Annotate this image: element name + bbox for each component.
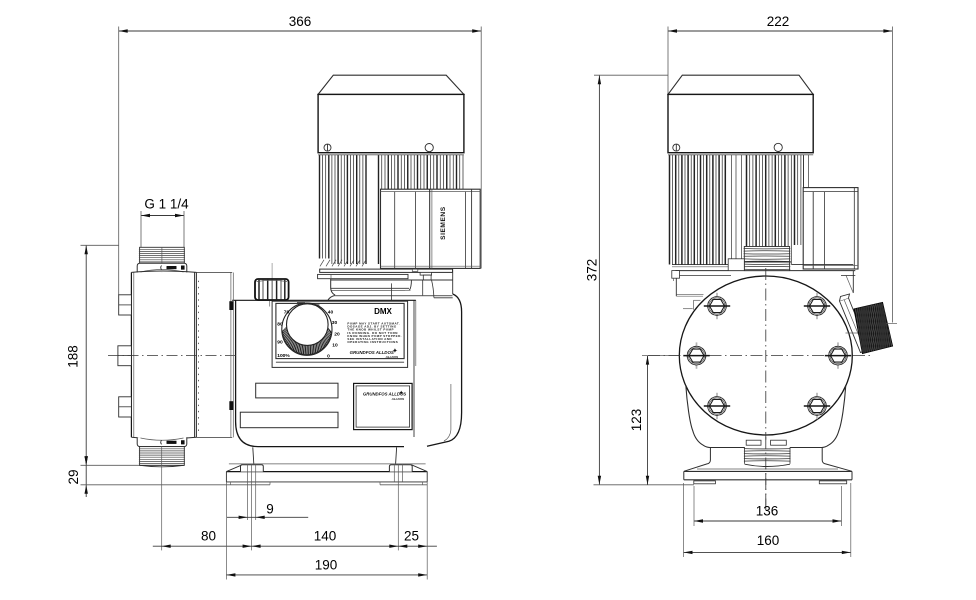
svg-text:90: 90: [277, 340, 283, 346]
svg-text:40: 40: [328, 310, 334, 316]
svg-text:30: 30: [332, 320, 338, 326]
svg-text:123: 123: [629, 409, 644, 432]
svg-text:80: 80: [277, 322, 283, 328]
svg-text:DMX: DMX: [374, 307, 392, 316]
svg-text:G 1 1/4: G 1 1/4: [144, 197, 189, 212]
svg-text:80: 80: [201, 529, 216, 544]
svg-text:70: 70: [284, 310, 290, 316]
svg-text:366: 366: [289, 14, 312, 29]
svg-text:✦: ✦: [399, 389, 405, 397]
svg-text:25: 25: [404, 529, 419, 544]
svg-text:✦: ✦: [392, 347, 398, 355]
svg-text:136: 136: [756, 504, 779, 519]
svg-text:100%: 100%: [277, 353, 290, 359]
svg-text:9: 9: [266, 502, 274, 517]
svg-text:160: 160: [757, 533, 780, 548]
svg-text:20: 20: [334, 332, 340, 338]
svg-text:29: 29: [66, 469, 81, 484]
svg-text:ALLDOS: ALLDOS: [385, 355, 398, 359]
svg-text:0: 0: [327, 354, 330, 360]
svg-text:SIEMENS: SIEMENS: [440, 206, 447, 240]
svg-text:188: 188: [66, 345, 81, 368]
svg-text:ALLDOS: ALLDOS: [391, 397, 404, 401]
svg-text:OPERATING INSTRUCTIONS: OPERATING INSTRUCTIONS: [347, 340, 398, 344]
svg-text:10: 10: [332, 343, 338, 349]
svg-text:190: 190: [315, 558, 338, 573]
svg-text:372: 372: [585, 259, 600, 282]
svg-text:222: 222: [767, 14, 790, 29]
svg-text:140: 140: [314, 529, 337, 544]
